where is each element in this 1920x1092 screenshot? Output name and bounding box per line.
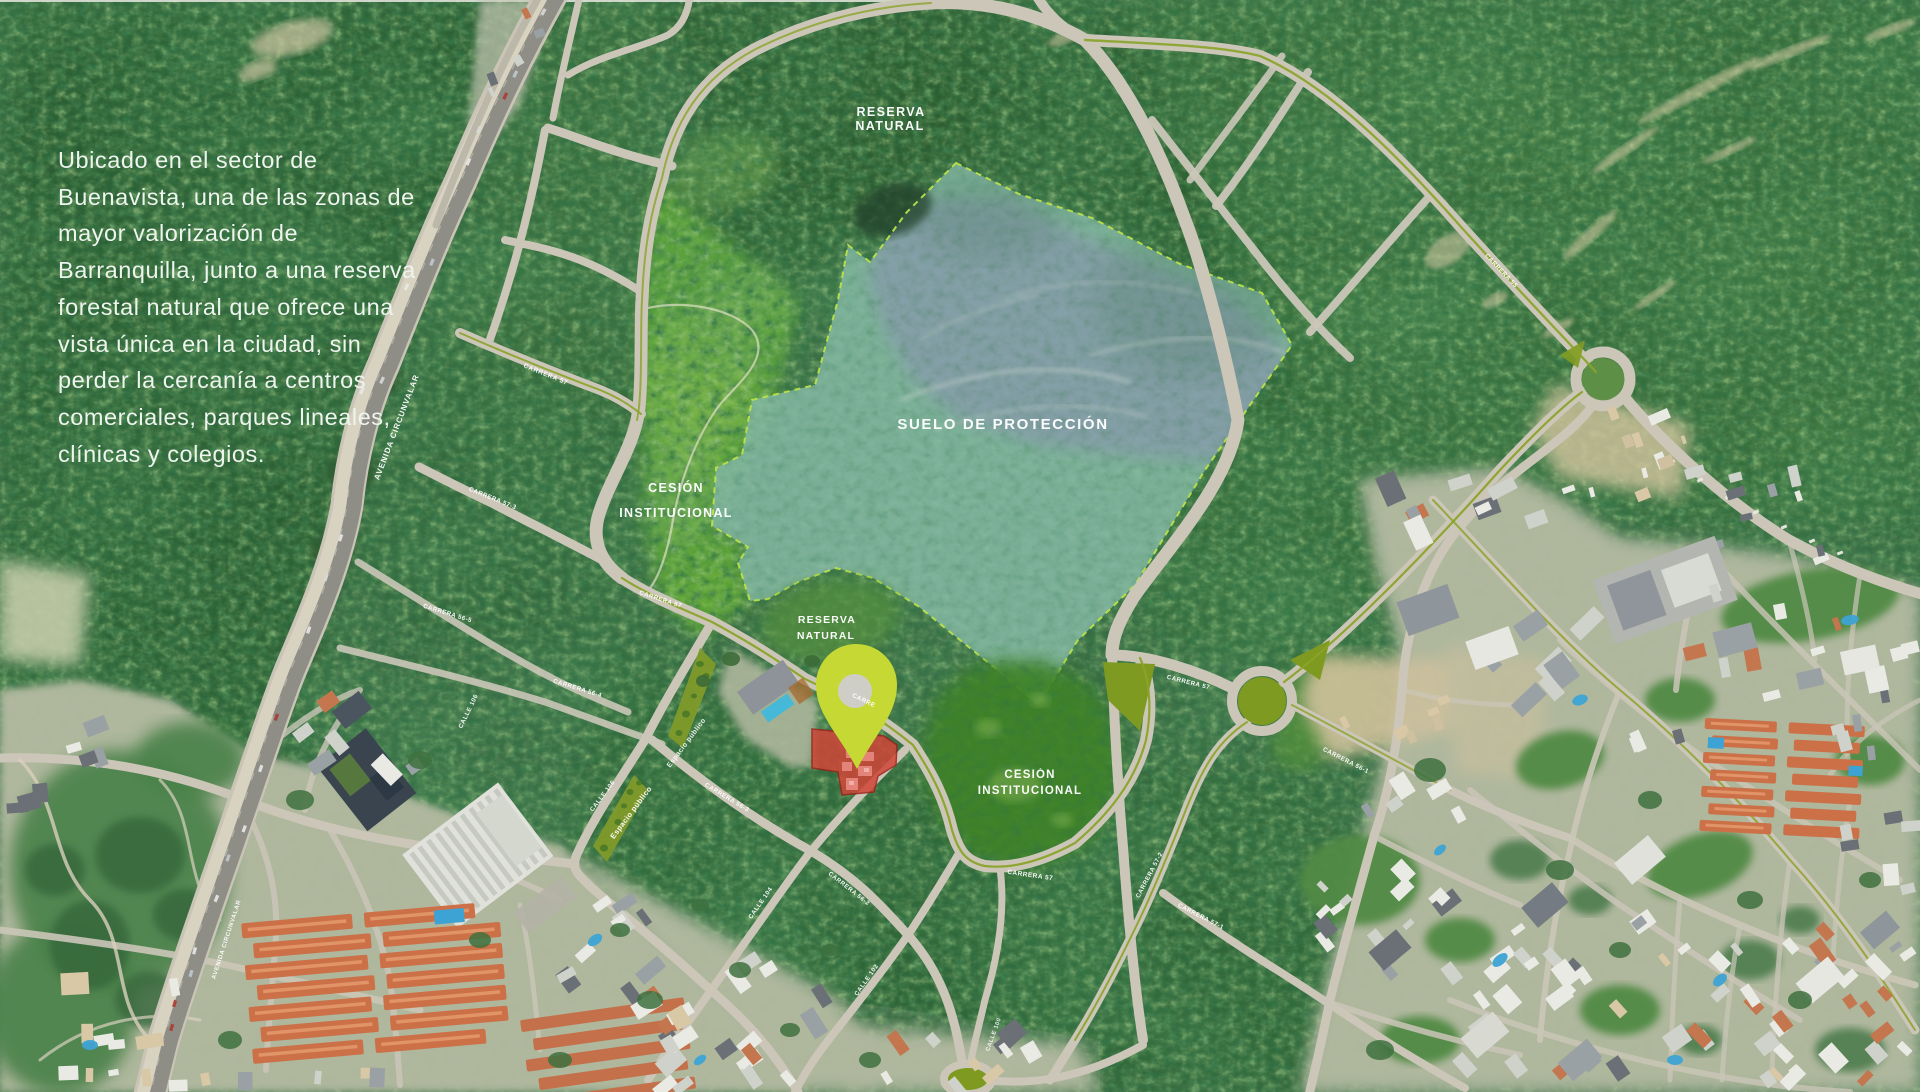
svg-text:NATURAL: NATURAL xyxy=(855,119,924,133)
svg-text:RESERVA: RESERVA xyxy=(856,105,925,119)
svg-text:CESIÓN: CESIÓN xyxy=(1004,768,1055,781)
svg-text:CESIÓN: CESIÓN xyxy=(648,480,704,495)
svg-text:NATURAL: NATURAL xyxy=(797,630,855,642)
svg-text:INSTITUCIONAL: INSTITUCIONAL xyxy=(978,785,1082,797)
svg-text:INSTITUCIONAL: INSTITUCIONAL xyxy=(619,506,732,520)
svg-text:RESERVA: RESERVA xyxy=(798,614,856,626)
svg-text:SUELO DE PROTECCIÓN: SUELO DE PROTECCIÓN xyxy=(897,415,1108,433)
